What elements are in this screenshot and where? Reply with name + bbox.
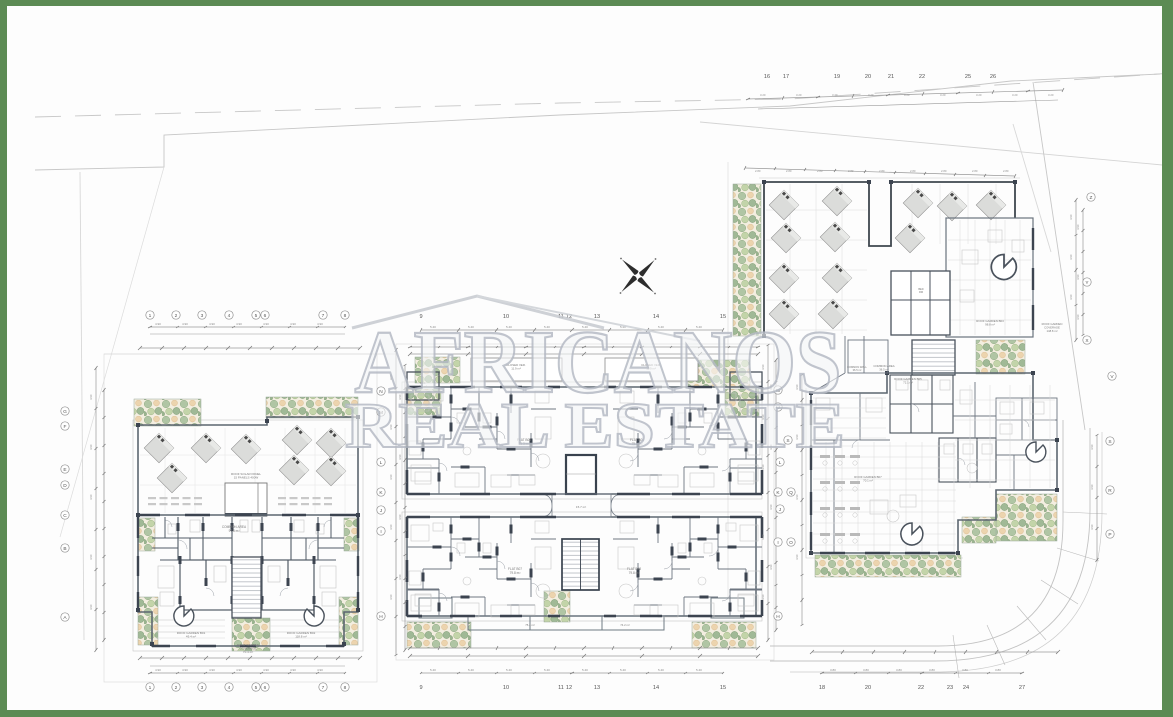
svg-text:4.90: 4.90 bbox=[1076, 224, 1080, 230]
svg-text:14: 14 bbox=[653, 685, 659, 691]
svg-text:2.80: 2.80 bbox=[755, 169, 761, 173]
svg-text:20: 20 bbox=[865, 74, 871, 80]
svg-text:Z: Z bbox=[1090, 195, 1093, 201]
svg-text:ROOF SOLAR PANEL15 PANELS 400W: ROOF SOLAR PANEL15 PANELS 400W bbox=[231, 472, 261, 480]
svg-text:5.40: 5.40 bbox=[544, 668, 550, 672]
svg-text:2.80: 2.80 bbox=[848, 169, 854, 173]
svg-text:4.90: 4.90 bbox=[317, 322, 323, 326]
svg-text:5: 5 bbox=[255, 685, 258, 691]
svg-text:FLAT B0879.8 m²: FLAT B0879.8 m² bbox=[627, 567, 641, 575]
svg-text:4.90: 4.90 bbox=[795, 494, 799, 500]
svg-text:19: 19 bbox=[834, 74, 840, 80]
svg-text:4.90: 4.90 bbox=[236, 668, 242, 672]
svg-text:18: 18 bbox=[819, 685, 825, 691]
svg-text:16: 16 bbox=[764, 74, 770, 80]
svg-text:P: P bbox=[1108, 532, 1111, 538]
svg-text:O: O bbox=[789, 540, 793, 546]
svg-text:13: 13 bbox=[594, 685, 600, 691]
svg-text:2: 2 bbox=[175, 685, 178, 691]
svg-text:2.80: 2.80 bbox=[941, 169, 947, 173]
svg-text:4.90: 4.90 bbox=[761, 464, 765, 470]
svg-text:5.40: 5.40 bbox=[696, 668, 702, 672]
svg-text:F: F bbox=[64, 424, 67, 430]
svg-text:2.80: 2.80 bbox=[817, 169, 823, 173]
svg-text:D: D bbox=[63, 483, 67, 489]
svg-text:5.40: 5.40 bbox=[582, 668, 588, 672]
svg-text:B: B bbox=[63, 546, 66, 552]
svg-text:4.90: 4.90 bbox=[89, 494, 93, 500]
svg-text:15.7 m²: 15.7 m² bbox=[576, 505, 586, 509]
svg-text:7: 7 bbox=[322, 313, 325, 319]
svg-text:5.40: 5.40 bbox=[620, 668, 626, 672]
svg-text:74.2 m²: 74.2 m² bbox=[620, 623, 630, 627]
svg-text:4.90: 4.90 bbox=[398, 514, 402, 520]
svg-text:4.90: 4.90 bbox=[389, 524, 393, 530]
svg-text:4.90: 4.90 bbox=[209, 322, 215, 326]
svg-text:3.20: 3.20 bbox=[976, 93, 982, 97]
svg-text:G: G bbox=[63, 409, 67, 415]
svg-text:4.90: 4.90 bbox=[209, 668, 215, 672]
svg-text:4.90: 4.90 bbox=[236, 322, 242, 326]
svg-text:5.40: 5.40 bbox=[506, 668, 512, 672]
svg-text:R: R bbox=[1108, 488, 1112, 494]
svg-text:9: 9 bbox=[419, 685, 422, 691]
svg-text:5: 5 bbox=[255, 313, 258, 319]
svg-text:8: 8 bbox=[344, 313, 347, 319]
svg-text:4.90: 4.90 bbox=[795, 554, 799, 560]
svg-text:21: 21 bbox=[888, 74, 894, 80]
svg-text:3.20: 3.20 bbox=[796, 93, 802, 97]
svg-text:3.20: 3.20 bbox=[1012, 93, 1018, 97]
svg-text:8: 8 bbox=[344, 685, 347, 691]
svg-text:H: H bbox=[379, 614, 383, 620]
svg-text:22: 22 bbox=[919, 74, 925, 80]
svg-text:10: 10 bbox=[503, 685, 509, 691]
svg-text:4.90: 4.90 bbox=[155, 322, 161, 326]
svg-text:24: 24 bbox=[963, 685, 969, 691]
svg-text:4.90: 4.90 bbox=[89, 444, 93, 450]
svg-text:4.90: 4.90 bbox=[290, 668, 296, 672]
svg-text:4.90: 4.90 bbox=[182, 668, 188, 672]
svg-text:11: 11 bbox=[558, 685, 564, 691]
svg-text:4.90: 4.90 bbox=[89, 604, 93, 610]
svg-text:12: 12 bbox=[566, 685, 572, 691]
svg-text:2.80: 2.80 bbox=[1003, 169, 1009, 173]
svg-text:5.40: 5.40 bbox=[430, 668, 436, 672]
svg-text:75.4 m²: 75.4 m² bbox=[525, 623, 535, 627]
svg-text:4.90: 4.90 bbox=[89, 554, 93, 560]
svg-text:4.90: 4.90 bbox=[769, 504, 773, 510]
svg-text:3.20: 3.20 bbox=[940, 93, 946, 97]
svg-text:Q: Q bbox=[789, 490, 793, 496]
svg-text:FLAT B0779.8 m²: FLAT B0779.8 m² bbox=[508, 567, 522, 575]
svg-text:4.90: 4.90 bbox=[389, 474, 393, 480]
svg-text:1: 1 bbox=[149, 313, 152, 319]
svg-text:15: 15 bbox=[720, 685, 726, 691]
svg-text:22: 22 bbox=[918, 685, 924, 691]
svg-text:4.90: 4.90 bbox=[1090, 484, 1094, 490]
svg-text:3.20: 3.20 bbox=[760, 93, 766, 97]
svg-text:5.40: 5.40 bbox=[468, 668, 474, 672]
svg-text:25: 25 bbox=[965, 74, 971, 80]
svg-text:26: 26 bbox=[990, 74, 996, 80]
svg-text:4.90: 4.90 bbox=[1069, 214, 1073, 220]
svg-text:1: 1 bbox=[149, 685, 152, 691]
svg-text:4.90: 4.90 bbox=[155, 668, 161, 672]
svg-text:C: C bbox=[63, 513, 67, 519]
svg-text:H: H bbox=[776, 614, 780, 620]
svg-text:4.90: 4.90 bbox=[769, 564, 773, 570]
svg-text:4.90: 4.90 bbox=[1069, 254, 1073, 260]
svg-text:3.80: 3.80 bbox=[929, 668, 935, 672]
svg-text:3.80: 3.80 bbox=[830, 668, 836, 672]
svg-text:3.20: 3.20 bbox=[832, 93, 838, 97]
svg-text:2.80: 2.80 bbox=[910, 169, 916, 173]
svg-text:7: 7 bbox=[322, 685, 325, 691]
svg-text:I: I bbox=[777, 540, 778, 546]
svg-text:2.80: 2.80 bbox=[972, 169, 978, 173]
svg-text:4.90: 4.90 bbox=[89, 394, 93, 400]
svg-text:4: 4 bbox=[228, 685, 231, 691]
svg-text:4.90: 4.90 bbox=[1090, 524, 1094, 530]
svg-text:6: 6 bbox=[264, 313, 267, 319]
svg-text:4.90: 4.90 bbox=[1076, 274, 1080, 280]
svg-text:3.20: 3.20 bbox=[1048, 93, 1054, 97]
svg-text:3.20: 3.20 bbox=[904, 93, 910, 97]
svg-text:3.20: 3.20 bbox=[868, 93, 874, 97]
svg-text:5.40: 5.40 bbox=[658, 668, 664, 672]
svg-text:4.90: 4.90 bbox=[263, 668, 269, 672]
svg-text:4.90: 4.90 bbox=[398, 574, 402, 580]
svg-text:27: 27 bbox=[1019, 685, 1025, 691]
svg-text:23: 23 bbox=[947, 685, 953, 691]
svg-text:20: 20 bbox=[865, 685, 871, 691]
svg-text:4.90: 4.90 bbox=[290, 322, 296, 326]
svg-text:3: 3 bbox=[201, 685, 204, 691]
svg-text:E: E bbox=[63, 467, 66, 473]
svg-text:3.80: 3.80 bbox=[896, 668, 902, 672]
svg-text:2.80: 2.80 bbox=[879, 169, 885, 173]
svg-text:4.90: 4.90 bbox=[761, 594, 765, 600]
svg-text:2: 2 bbox=[175, 313, 178, 319]
svg-text:I: I bbox=[380, 529, 381, 535]
svg-text:REAL ESTATE: REAL ESTATE bbox=[345, 390, 845, 462]
svg-text:4.90: 4.90 bbox=[1090, 444, 1094, 450]
svg-text:2.80: 2.80 bbox=[786, 169, 792, 173]
svg-text:17: 17 bbox=[783, 74, 789, 80]
svg-text:4.90: 4.90 bbox=[1069, 294, 1073, 300]
svg-text:4.90: 4.90 bbox=[761, 534, 765, 540]
svg-text:4.90: 4.90 bbox=[1076, 314, 1080, 320]
svg-text:6: 6 bbox=[264, 685, 267, 691]
svg-text:BEDRM: BEDRM bbox=[918, 287, 923, 294]
svg-text:S: S bbox=[1108, 439, 1111, 445]
svg-text:4: 4 bbox=[228, 313, 231, 319]
svg-text:3.80: 3.80 bbox=[863, 668, 869, 672]
svg-text:3.80: 3.80 bbox=[995, 668, 1001, 672]
svg-text:4.90: 4.90 bbox=[182, 322, 188, 326]
svg-text:3: 3 bbox=[201, 313, 204, 319]
svg-text:4.90: 4.90 bbox=[263, 322, 269, 326]
svg-text:3.80: 3.80 bbox=[962, 668, 968, 672]
svg-text:4.90: 4.90 bbox=[317, 668, 323, 672]
svg-text:4.90: 4.90 bbox=[389, 594, 393, 600]
